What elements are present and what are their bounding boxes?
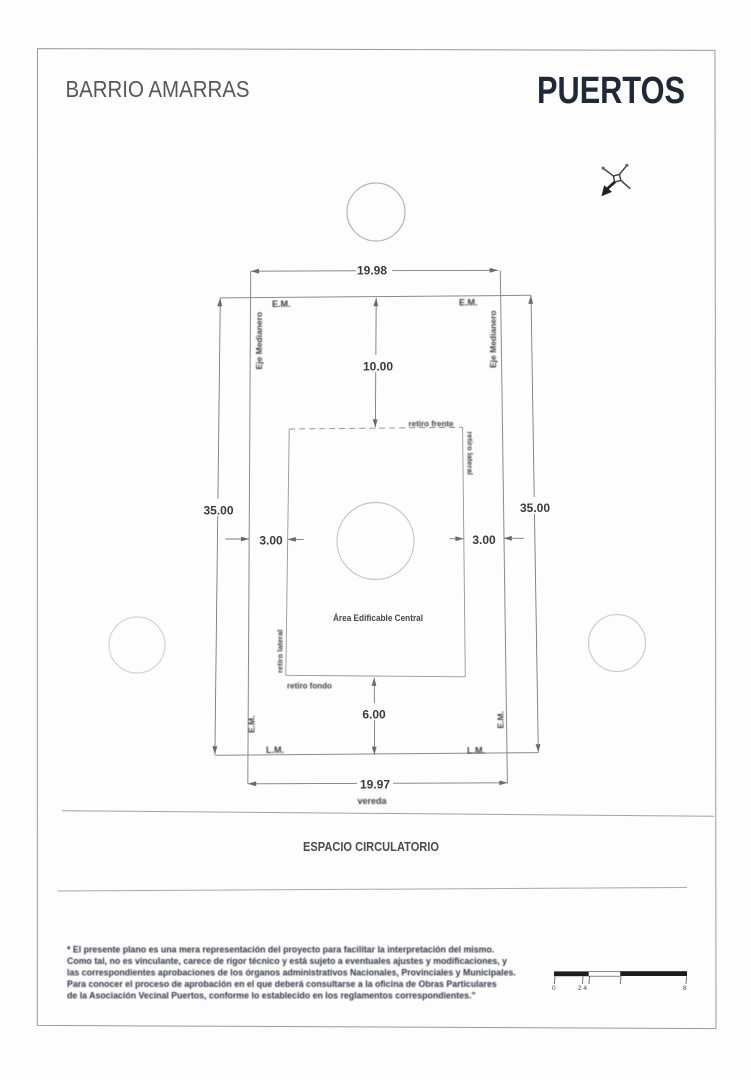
- svg-text:E.M.: E.M.: [459, 298, 478, 308]
- svg-text:35.00: 35.00: [203, 504, 233, 518]
- svg-text:* El presente plano es una mer: * El presente plano es una mera represen…: [67, 945, 494, 955]
- svg-text:PUERTOS: PUERTOS: [537, 70, 685, 112]
- svg-text:Para conocer el proceso de apr: Para conocer el proceso de aprobación en…: [67, 979, 497, 989]
- svg-text:8: 8: [683, 985, 687, 992]
- svg-text:6.00: 6.00: [362, 708, 386, 722]
- svg-text:BARRIO AMARRAS: BARRIO AMARRAS: [66, 76, 250, 102]
- svg-text:Eje Medianero: Eje Medianero: [488, 310, 498, 368]
- svg-text:retiro lateral: retiro lateral: [276, 630, 285, 673]
- svg-text:2 4: 2 4: [578, 985, 587, 992]
- svg-text:Área Edificable Central: Área Edificable Central: [333, 613, 423, 624]
- svg-text:retiro frente: retiro frente: [409, 420, 454, 429]
- svg-text:Como tal, no es vinculante, ca: Como tal, no es vinculante, carece de ri…: [67, 956, 507, 966]
- svg-text:19.97: 19.97: [360, 778, 390, 792]
- svg-text:3.00: 3.00: [259, 534, 283, 548]
- svg-text:L.M.: L.M.: [266, 745, 284, 755]
- svg-text:E.M.: E.M.: [247, 716, 257, 733]
- svg-text:E.M.: E.M.: [272, 299, 291, 309]
- svg-text:10.00: 10.00: [363, 360, 393, 374]
- svg-text:L.M.: L.M.: [467, 746, 485, 756]
- svg-text:19.98: 19.98: [357, 264, 387, 278]
- svg-text:las correspondientes aprobacio: las correspondientes aprobaciones de los…: [67, 968, 516, 978]
- svg-text:E.M.: E.M.: [496, 711, 506, 728]
- svg-text:0: 0: [552, 985, 556, 992]
- svg-text:3.00: 3.00: [472, 533, 496, 547]
- svg-text:vereda: vereda: [357, 796, 387, 806]
- svg-text:Eje Medianero: Eje Medianero: [254, 312, 264, 370]
- svg-text:35.00: 35.00: [520, 501, 550, 515]
- svg-text:retiro lateral: retiro lateral: [466, 432, 475, 475]
- svg-text:retiro fondo: retiro fondo: [287, 682, 332, 691]
- svg-text:de la Asociación Vecinal Puert: de la Asociación Vecinal Puertos, confor…: [67, 991, 476, 1001]
- svg-text:ESPACIO CIRCULATORIO: ESPACIO CIRCULATORIO: [303, 840, 439, 854]
